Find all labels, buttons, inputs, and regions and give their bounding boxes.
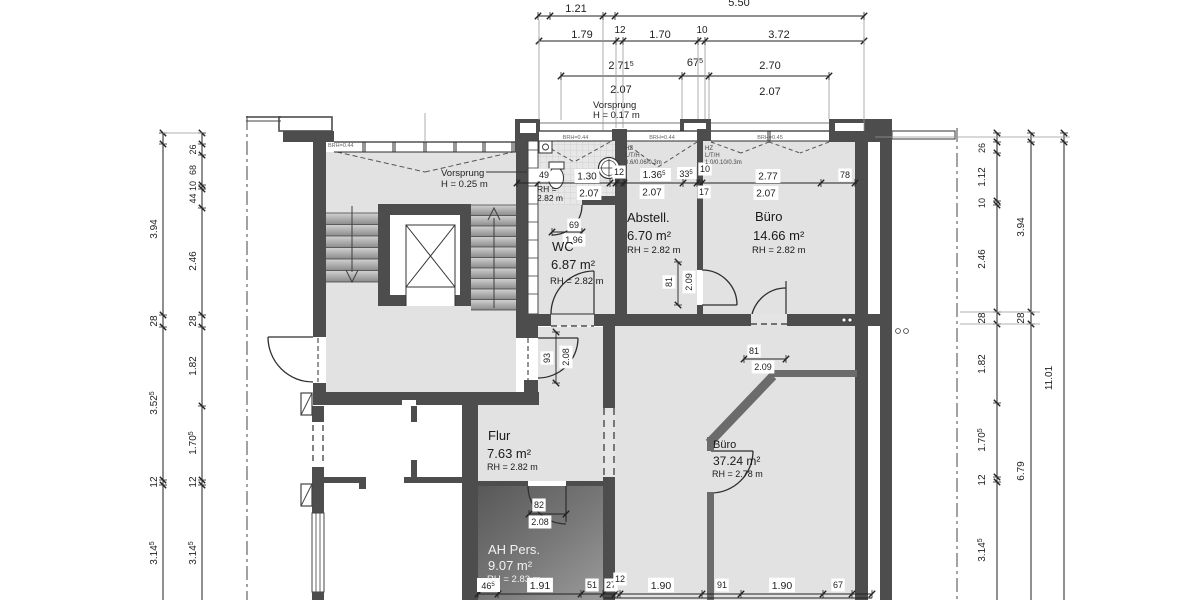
svg-text:6.70 m²: 6.70 m² (627, 228, 672, 243)
svg-text:10: 10 (696, 25, 708, 36)
svg-text:69: 69 (569, 220, 579, 230)
svg-text:1.82: 1.82 (977, 354, 988, 374)
svg-text:3.72: 3.72 (768, 29, 789, 41)
svg-text:2.82 m: 2.82 m (537, 193, 563, 203)
svg-text:28: 28 (977, 312, 988, 324)
svg-text:2.07: 2.07 (579, 189, 599, 200)
svg-text:Vorsprung: Vorsprung (441, 168, 484, 179)
svg-text:1.90: 1.90 (772, 580, 793, 592)
svg-text:28: 28 (188, 315, 199, 327)
svg-text:RH = 2.82 m: RH = 2.82 m (550, 276, 604, 287)
svg-text:1.82: 1.82 (188, 356, 199, 376)
svg-text:82: 82 (534, 500, 544, 510)
svg-text:9.07 m²: 9.07 m² (488, 558, 533, 573)
svg-text:L/T/H: L/T/H (705, 153, 720, 159)
svg-text:Abstell.: Abstell. (627, 210, 670, 225)
svg-text:BRH=0.44: BRH=0.44 (328, 143, 354, 149)
svg-text:RH = 2.82 m: RH = 2.82 m (487, 462, 538, 472)
svg-text:68: 68 (188, 165, 198, 175)
svg-text:81: 81 (664, 277, 674, 287)
svg-text:49: 49 (539, 170, 549, 180)
svg-text:26: 26 (188, 144, 198, 154)
svg-text:H = 0.17 m: H = 0.17 m (593, 110, 640, 121)
svg-text:12: 12 (977, 474, 988, 486)
svg-text:2.09: 2.09 (684, 273, 694, 291)
svg-text:78: 78 (840, 170, 850, 180)
svg-text:2.46: 2.46 (188, 251, 199, 271)
svg-text:6.79: 6.79 (1016, 461, 1027, 481)
svg-text:1.70: 1.70 (649, 29, 670, 41)
svg-text:Büro: Büro (755, 209, 782, 224)
svg-text:L/T/H: L/T/H (625, 153, 640, 159)
svg-text:1.0/0.10/0.3m: 1.0/0.10/0.3m (705, 160, 742, 166)
svg-text:Flur: Flur (488, 428, 511, 443)
svg-text:Büro: Büro (713, 439, 736, 451)
svg-text:12: 12 (614, 25, 626, 36)
svg-text:81: 81 (749, 346, 759, 356)
svg-text:AH Pers.: AH Pers. (488, 542, 540, 557)
svg-text:28: 28 (149, 315, 160, 327)
svg-text:12: 12 (614, 167, 624, 177)
svg-text:6.87 m²: 6.87 m² (551, 257, 596, 272)
svg-text:1.90: 1.90 (651, 580, 672, 592)
svg-text:RH = 2.82 m: RH = 2.82 m (627, 245, 681, 256)
svg-text:2.77: 2.77 (758, 172, 778, 183)
svg-text:3.94: 3.94 (149, 219, 160, 239)
svg-text:12: 12 (188, 476, 199, 488)
svg-text:10: 10 (977, 198, 987, 208)
svg-text:5.50: 5.50 (728, 0, 749, 9)
svg-text:BRH=0.44: BRH=0.44 (563, 135, 589, 141)
svg-text:1.30: 1.30 (577, 172, 597, 183)
svg-text:1.79: 1.79 (571, 29, 592, 41)
svg-text:28: 28 (1016, 312, 1027, 324)
svg-text:12: 12 (149, 476, 160, 488)
svg-text:37.24 m²: 37.24 m² (713, 454, 760, 468)
svg-text:51: 51 (587, 580, 597, 590)
svg-text:2.09: 2.09 (754, 362, 772, 372)
svg-text:2.07: 2.07 (642, 188, 662, 199)
svg-text:H = 0.25 m: H = 0.25 m (441, 179, 488, 190)
svg-text:3.94: 3.94 (1016, 217, 1027, 237)
svg-text:WC: WC (552, 239, 574, 254)
svg-text:2.08: 2.08 (531, 517, 549, 527)
svg-text:67: 67 (833, 580, 843, 590)
svg-text:14.66 m²: 14.66 m² (753, 228, 805, 243)
svg-text:10: 10 (188, 181, 198, 191)
svg-text:93: 93 (542, 353, 552, 363)
svg-text:BRH=0.44: BRH=0.44 (649, 135, 675, 141)
svg-text:RH = 2.82 m: RH = 2.82 m (752, 245, 806, 256)
svg-text:91: 91 (717, 580, 727, 590)
svg-text:2.07: 2.07 (759, 86, 780, 98)
svg-text:2.08: 2.08 (561, 348, 571, 366)
svg-text:1.12: 1.12 (977, 167, 988, 187)
svg-text:2.07: 2.07 (756, 189, 776, 200)
svg-text:HZ: HZ (705, 146, 713, 152)
svg-text:11.01: 11.01 (1044, 365, 1055, 390)
svg-text:HZ: HZ (625, 146, 633, 152)
svg-text:0.6/0.06/0.3m: 0.6/0.06/0.3m (625, 160, 662, 166)
svg-text:2.07: 2.07 (610, 84, 631, 96)
svg-text:2.46: 2.46 (977, 249, 988, 269)
svg-text:1.21: 1.21 (565, 3, 586, 15)
svg-text:44: 44 (188, 193, 198, 203)
svg-text:RH = 2.83 m: RH = 2.83 m (487, 574, 541, 585)
svg-text:12: 12 (615, 574, 625, 584)
svg-text:RH = 2.78 m: RH = 2.78 m (712, 469, 763, 479)
svg-text:17: 17 (699, 187, 709, 197)
svg-text:7.63 m²: 7.63 m² (487, 446, 532, 461)
svg-text:26: 26 (977, 143, 987, 153)
svg-text:2.70: 2.70 (759, 60, 780, 72)
